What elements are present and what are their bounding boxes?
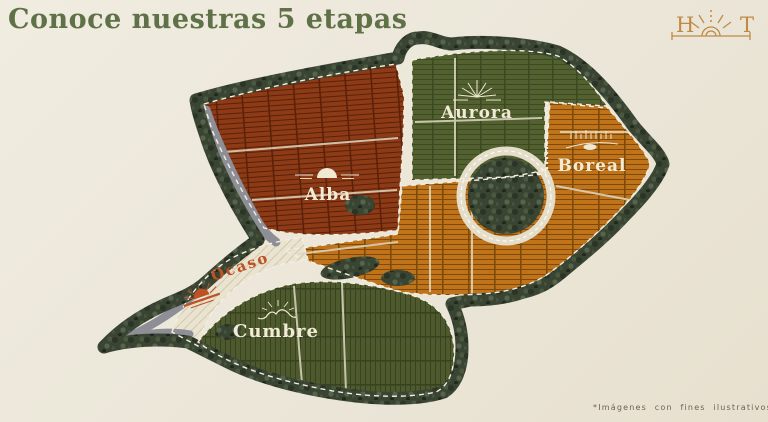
roundabout — [461, 151, 551, 241]
stage-label-alba: Alba — [304, 185, 352, 205]
stage-label-cumbre: Cumbre — [233, 321, 319, 342]
masterplan-map: Aurora Boreal Alba — [0, 0, 768, 422]
stage-label-boreal: Boreal — [558, 156, 627, 176]
stage-label-aurora: Aurora — [440, 103, 513, 123]
masterplan-page: Conoce nuestras 5 etapas H T — [0, 0, 768, 422]
disclaimer-footnote: *Imágenes con fines ilustrativos — [593, 403, 768, 412]
